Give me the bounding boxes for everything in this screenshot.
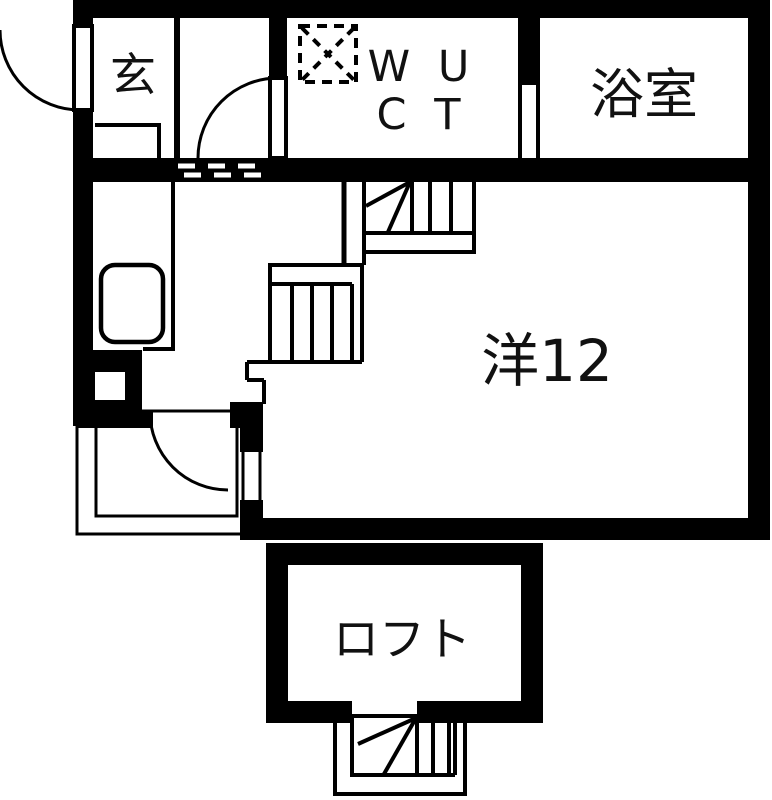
hall-door-leaf [270,78,286,158]
pipe-space [95,372,125,400]
room-right-wall-upper [240,428,263,452]
wall-top [73,0,770,18]
floorplan: 玄 W U C T 浴室 [0,0,772,800]
bathroom-door-opening [522,85,536,158]
loft-label: ロフト [333,612,471,666]
wall-genkan-divider [174,18,180,158]
floorplan-drawing: 玄 W U C T 浴室 [0,0,772,800]
lower-room-top-wall-left [76,410,153,428]
room-wall-corner-upper [230,402,263,428]
wall-left-upper-stub [73,0,93,28]
wc-label-line2: C T [377,90,468,140]
bathroom-label: 浴室 [590,63,698,126]
wall-hall-door-stub [269,18,287,78]
entrance-door-leaf [74,26,92,110]
main-room-label: 洋12 [481,327,613,395]
wall-right [748,0,770,540]
wc-label-line1: W U [368,42,477,92]
loft-winder-box [352,716,417,775]
room-right-wall-lower [240,500,263,540]
wall-mid-band [73,158,748,182]
wall-bottom [263,518,770,540]
entrance-label: 玄 [110,48,156,102]
sink [101,265,163,342]
